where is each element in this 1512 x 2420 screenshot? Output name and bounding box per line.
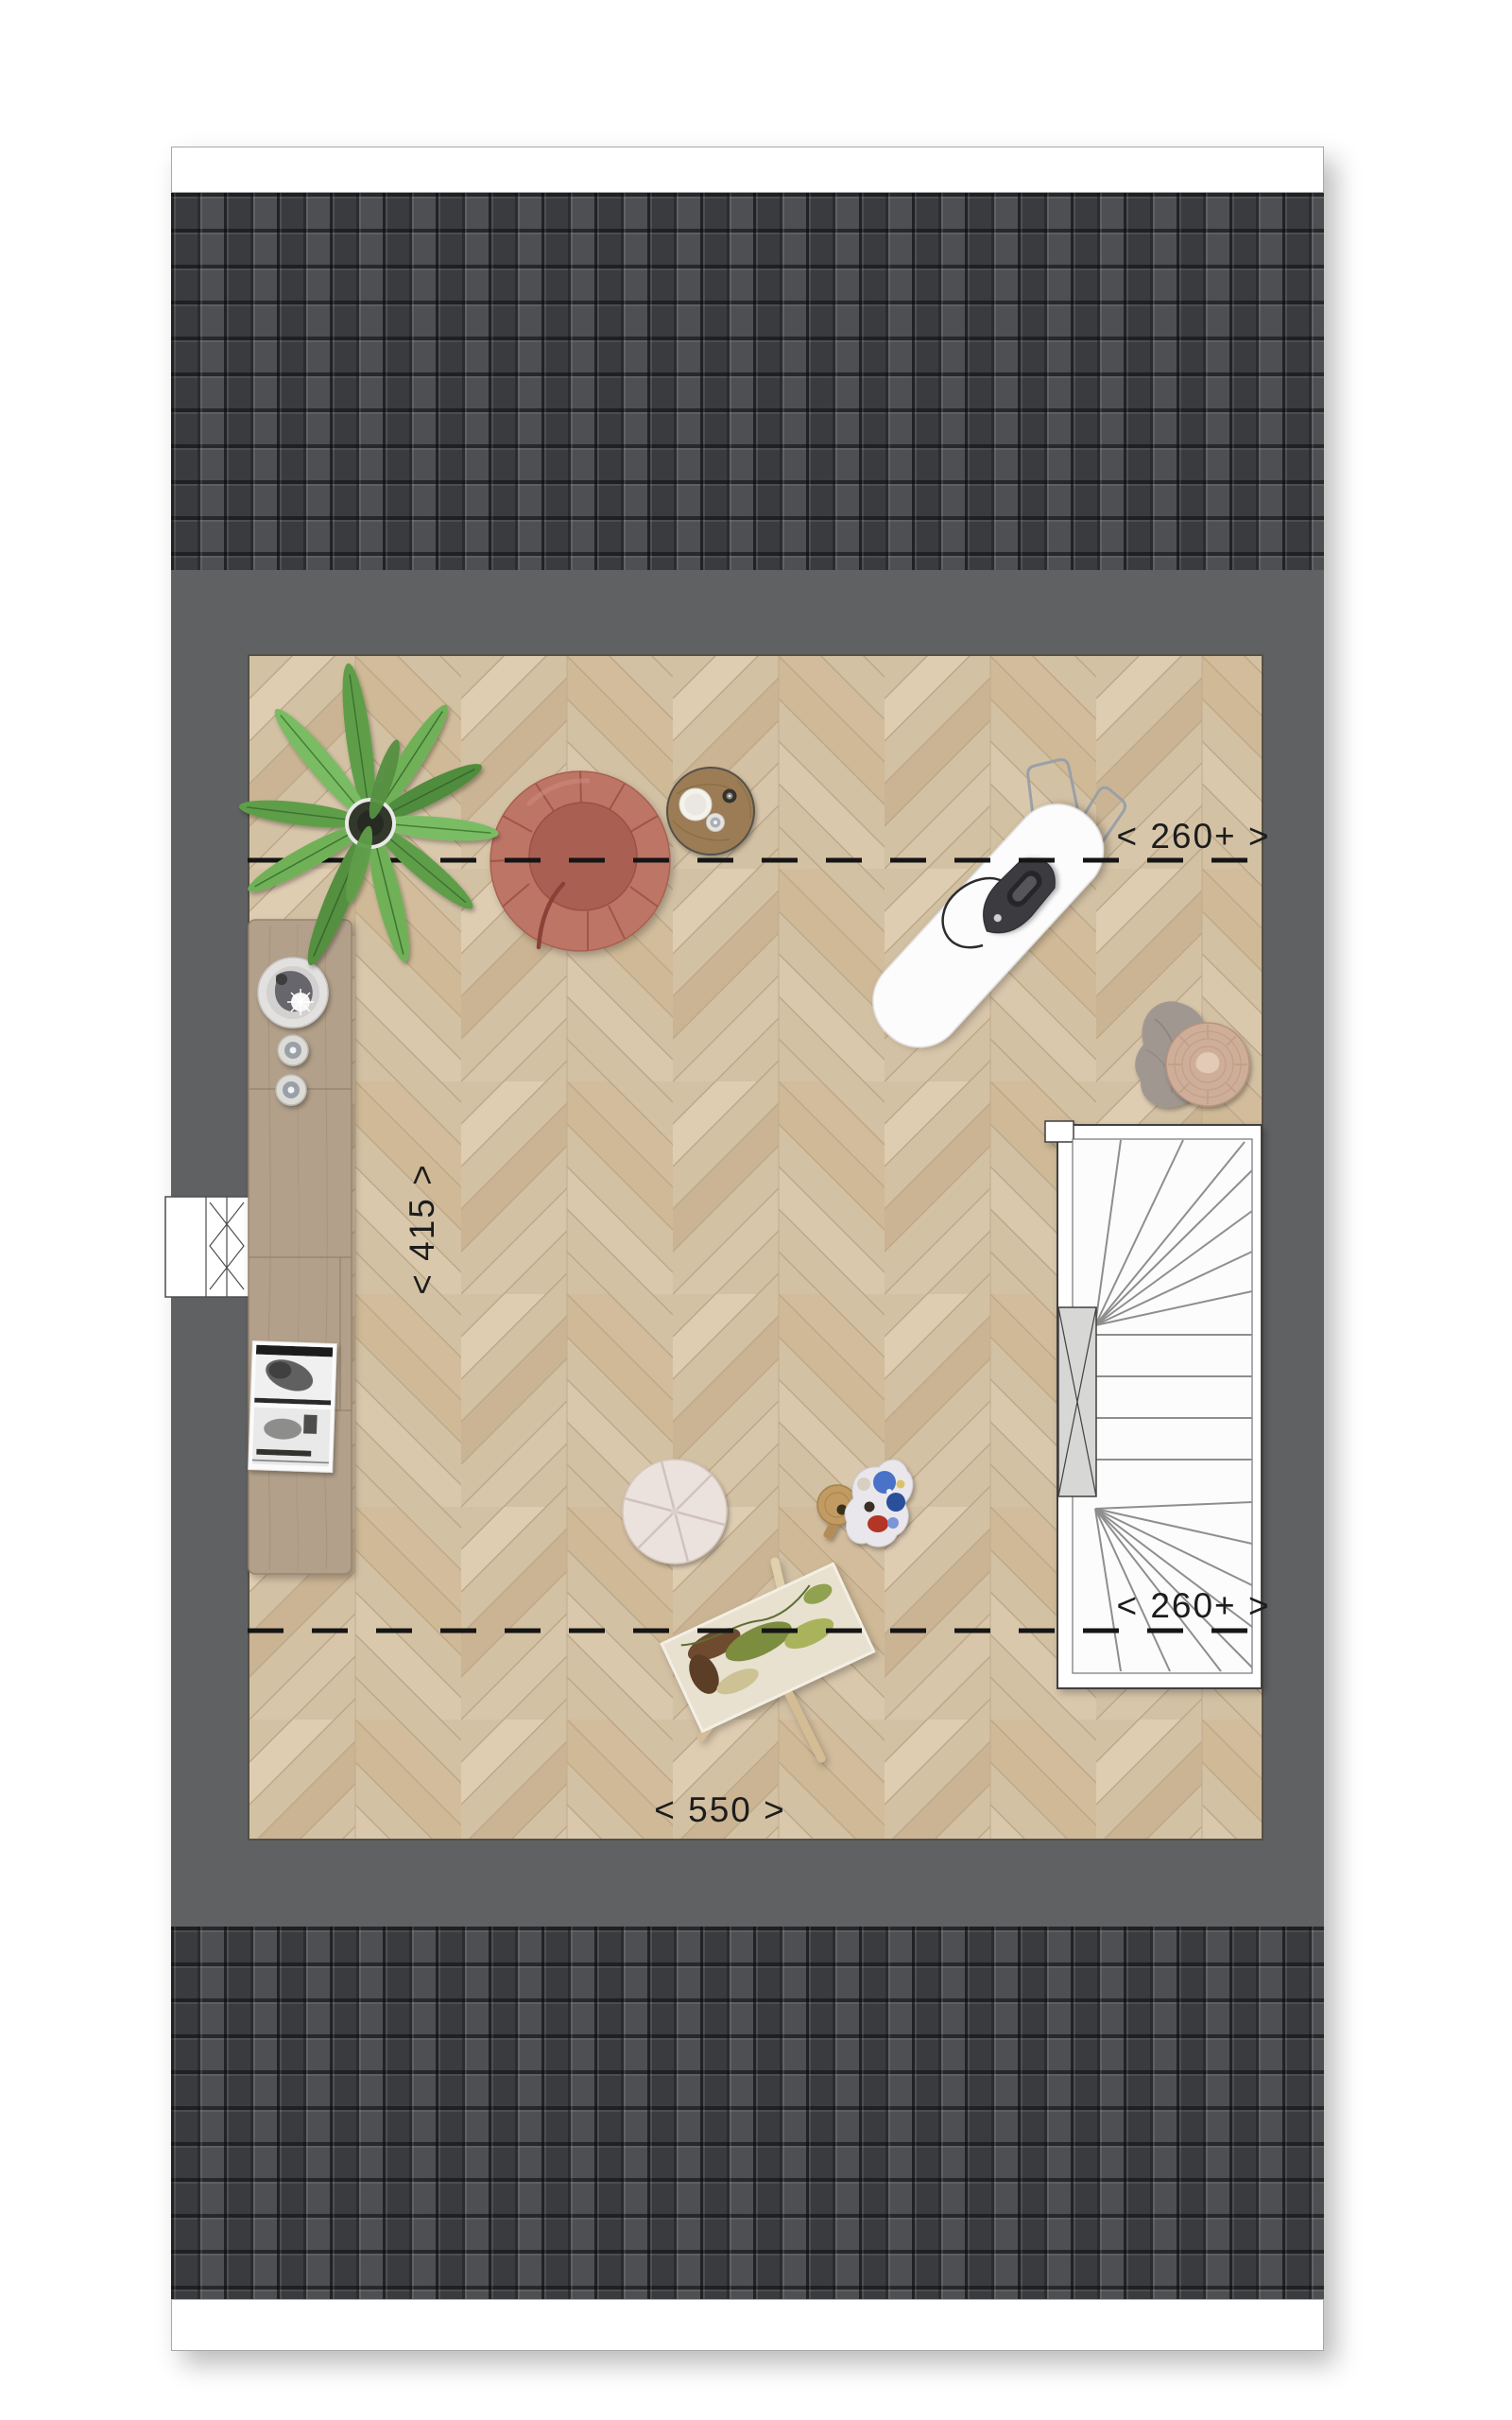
dimension-label-room-width: < 550 > (654, 1790, 786, 1830)
floor-plan-page: { "labels": { "dim_width_upper": "< 260+… (0, 0, 1512, 2420)
dimension-label-room-depth: < 415 > (403, 1163, 442, 1295)
bottom-facade-strip (171, 2299, 1324, 2351)
dimension-label-upper-width: < 260+ > (1116, 817, 1270, 856)
dimension-label-lower-width: < 260+ > (1116, 1586, 1270, 1626)
roof-tiles-top (171, 193, 1324, 570)
herringbone-floor (248, 654, 1263, 1841)
top-facade-strip (171, 147, 1324, 193)
roof-tiles-bottom (171, 1927, 1324, 2299)
